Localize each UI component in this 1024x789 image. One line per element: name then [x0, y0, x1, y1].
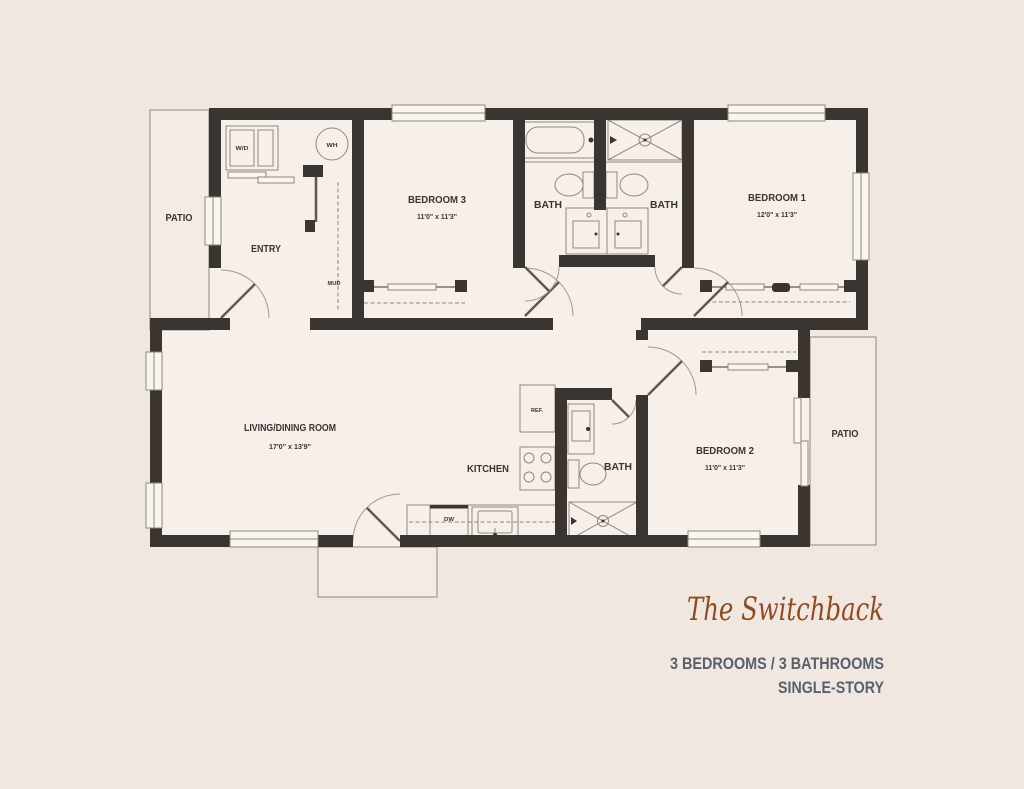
mud-room-label: MUD [328, 281, 341, 287]
window [392, 105, 485, 121]
entry-label: ENTRY [251, 244, 281, 255]
upper-floor [209, 108, 868, 330]
kitchen-label: KITCHEN [467, 464, 509, 475]
bedroom1-dims: 12'0" x 11'3" [757, 212, 797, 219]
bedroom1-label: BEDROOM 1 [748, 193, 806, 204]
refrigerator-label: REF. [531, 408, 543, 414]
title-block: The Switchback 3 BEDROOMS / 3 BATHROOMS … [670, 590, 885, 697]
floor-plan: PATIO ENTRY BEDROOM 3 11'0" x 11'3" BATH… [0, 0, 1024, 789]
bedroom3-label: BEDROOM 3 [408, 195, 466, 206]
washer-dryer-label: W/D [236, 146, 249, 152]
porch-area [318, 547, 437, 597]
plan-stats: 3 BEDROOMS / 3 BATHROOMS [670, 654, 884, 673]
plan-story: SINGLE-STORY [778, 678, 885, 697]
patio-right-area [810, 337, 876, 545]
window [688, 531, 760, 547]
bath2-label: BATH [650, 200, 678, 211]
patio-left-label: PATIO [166, 213, 193, 224]
bedroom2-dims: 11'0" x 11'3" [705, 465, 745, 472]
patio-right-label: PATIO [832, 429, 859, 440]
bedroom3-dims: 11'0" x 11'3" [417, 214, 457, 221]
floor-plan-page: PATIO ENTRY BEDROOM 3 11'0" x 11'3" BATH… [0, 0, 1024, 789]
window [205, 197, 221, 245]
window [146, 483, 162, 528]
tub-faucet [589, 138, 594, 143]
window [230, 531, 318, 547]
dishwasher-label: DW [444, 517, 455, 523]
window [853, 173, 869, 260]
bedroom2-label: BEDROOM 2 [696, 446, 754, 457]
window [728, 105, 825, 121]
window [146, 352, 162, 390]
bath3-label: BATH [604, 462, 632, 473]
water-heater-label: WH [327, 143, 338, 149]
bath1-label: BATH [534, 200, 562, 211]
living-dining-dims: 17'0" x 13'9" [269, 444, 311, 451]
living-dining-label: LIVING/DINING ROOM [244, 423, 336, 434]
plan-title: The Switchback [687, 590, 884, 628]
